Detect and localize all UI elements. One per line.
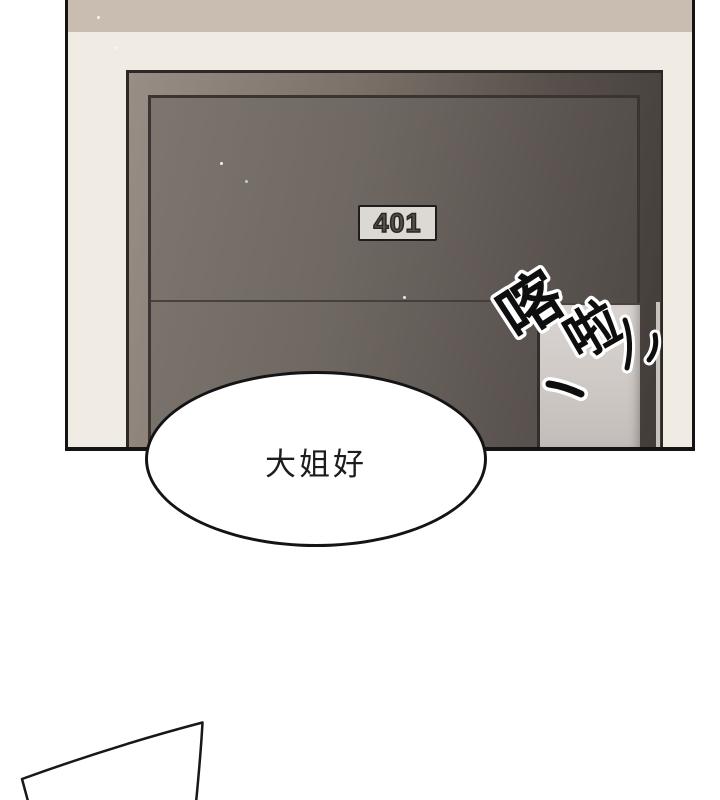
door-number-sign: 401 [358,205,437,241]
panel-border-right [692,0,695,451]
speck [245,180,248,183]
speech-bubble: 大姐好 [145,371,487,547]
door-opening-light [537,303,640,447]
speck [97,16,100,19]
door-seam-line [150,300,538,302]
door-number-text: 401 [373,210,421,237]
speck [403,296,406,299]
panel-border-left [65,0,68,451]
next-bubble-tail [22,723,203,800]
speck [220,162,223,165]
comic-page: 401 大姐好 喀 啦 [0,0,720,800]
ceiling-band [68,0,692,32]
speck [115,46,118,49]
door-edge-highlight [656,302,660,447]
speech-bubble-text: 大姐好 [265,439,367,484]
